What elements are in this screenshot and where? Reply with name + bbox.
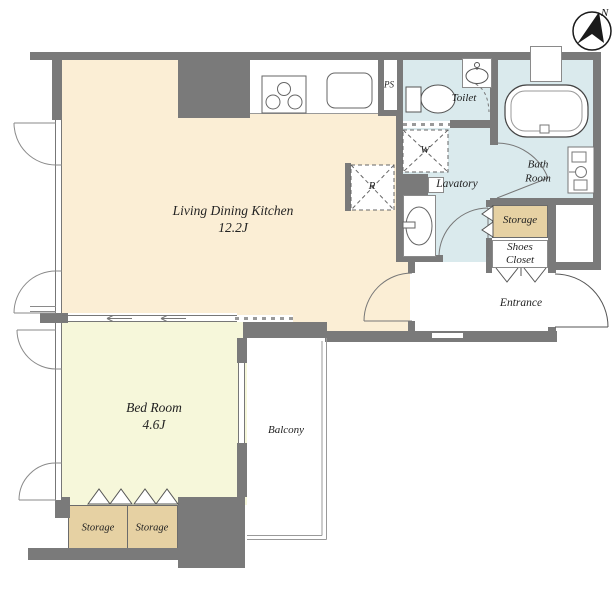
toilet-label: Toilet bbox=[452, 92, 477, 106]
shoes-closet-label: Shoes Closet bbox=[497, 241, 543, 267]
lavatory-basin-box bbox=[403, 195, 436, 257]
wall-bath-bottom bbox=[490, 198, 601, 205]
wall-left-mid-block bbox=[40, 313, 68, 323]
wall-ldk-bottom-thick bbox=[243, 322, 327, 338]
ldk-size: 12.2J bbox=[173, 220, 294, 237]
wall-kitchen-column bbox=[178, 56, 250, 118]
wall-right-outer bbox=[593, 52, 601, 270]
wall-closet-left-stub bbox=[486, 200, 492, 207]
slide-door-strip bbox=[56, 313, 237, 322]
floor-plan: N Living Dining Kitchen 12.2J Bed Room 4… bbox=[0, 0, 616, 599]
bedroom-storage-right-label: Storage bbox=[136, 521, 169, 534]
wall-bottom bbox=[28, 548, 182, 560]
hall-storage-label: Storage bbox=[503, 214, 537, 228]
wall-closet-left bbox=[486, 238, 492, 273]
wall-toilet-lavatory bbox=[450, 120, 492, 128]
wall-left-upper bbox=[52, 60, 62, 120]
ldk-left-window bbox=[55, 120, 62, 313]
wall-fridge-stub bbox=[345, 163, 351, 211]
ldk-name: Living Dining Kitchen bbox=[173, 203, 294, 220]
wall-bedroom-balcony-upper bbox=[237, 338, 247, 363]
ps-label: PS bbox=[384, 79, 394, 90]
refrigerator-label: R bbox=[369, 180, 376, 194]
wall-hall-door-upper bbox=[408, 256, 415, 273]
bedroom-name: Bed Room bbox=[126, 400, 182, 417]
wall-ps-bottom bbox=[378, 110, 397, 116]
bedroom-balcony-window bbox=[238, 363, 245, 443]
washing-machine-label: W bbox=[420, 144, 429, 158]
hallway-floor bbox=[415, 262, 492, 332]
bedroom-storage-left-label: Storage bbox=[82, 521, 115, 534]
bedroom-size: 4.6J bbox=[126, 417, 182, 434]
balcony-label: Balcony bbox=[268, 424, 304, 438]
toilet-folding-door bbox=[403, 121, 450, 128]
toilet-corner-sink-box bbox=[462, 58, 492, 88]
wall-washer-chunk bbox=[403, 174, 428, 195]
bathroom-label: Bath Room bbox=[518, 158, 558, 186]
wall-top bbox=[30, 52, 597, 60]
wall-wet-left bbox=[396, 52, 403, 258]
bedroom-label: Bed Room 4.6J bbox=[126, 400, 182, 434]
bedroom-left-window bbox=[55, 323, 62, 500]
bath-pipe-notch bbox=[530, 46, 562, 82]
wall-left-lower-stub bbox=[55, 497, 70, 518]
wall-bedroom-balcony-lower bbox=[237, 443, 247, 497]
ldk-balcony-window-hatch bbox=[235, 315, 293, 322]
entrance-label: Entrance bbox=[500, 296, 542, 310]
compass-icon: N bbox=[573, 7, 611, 50]
entrance-step-notch bbox=[432, 333, 463, 338]
wall-bottom-block bbox=[178, 497, 245, 568]
wall-entrance-right-upper bbox=[548, 205, 556, 273]
ldk-label: Living Dining Kitchen 12.2J bbox=[173, 203, 294, 237]
kitchen-counter bbox=[250, 58, 378, 114]
balcony-floor bbox=[247, 338, 327, 540]
lavatory-label: Lavatory bbox=[436, 177, 478, 191]
entrance-door-arc bbox=[555, 274, 608, 327]
compass-north-label: N bbox=[600, 7, 609, 19]
